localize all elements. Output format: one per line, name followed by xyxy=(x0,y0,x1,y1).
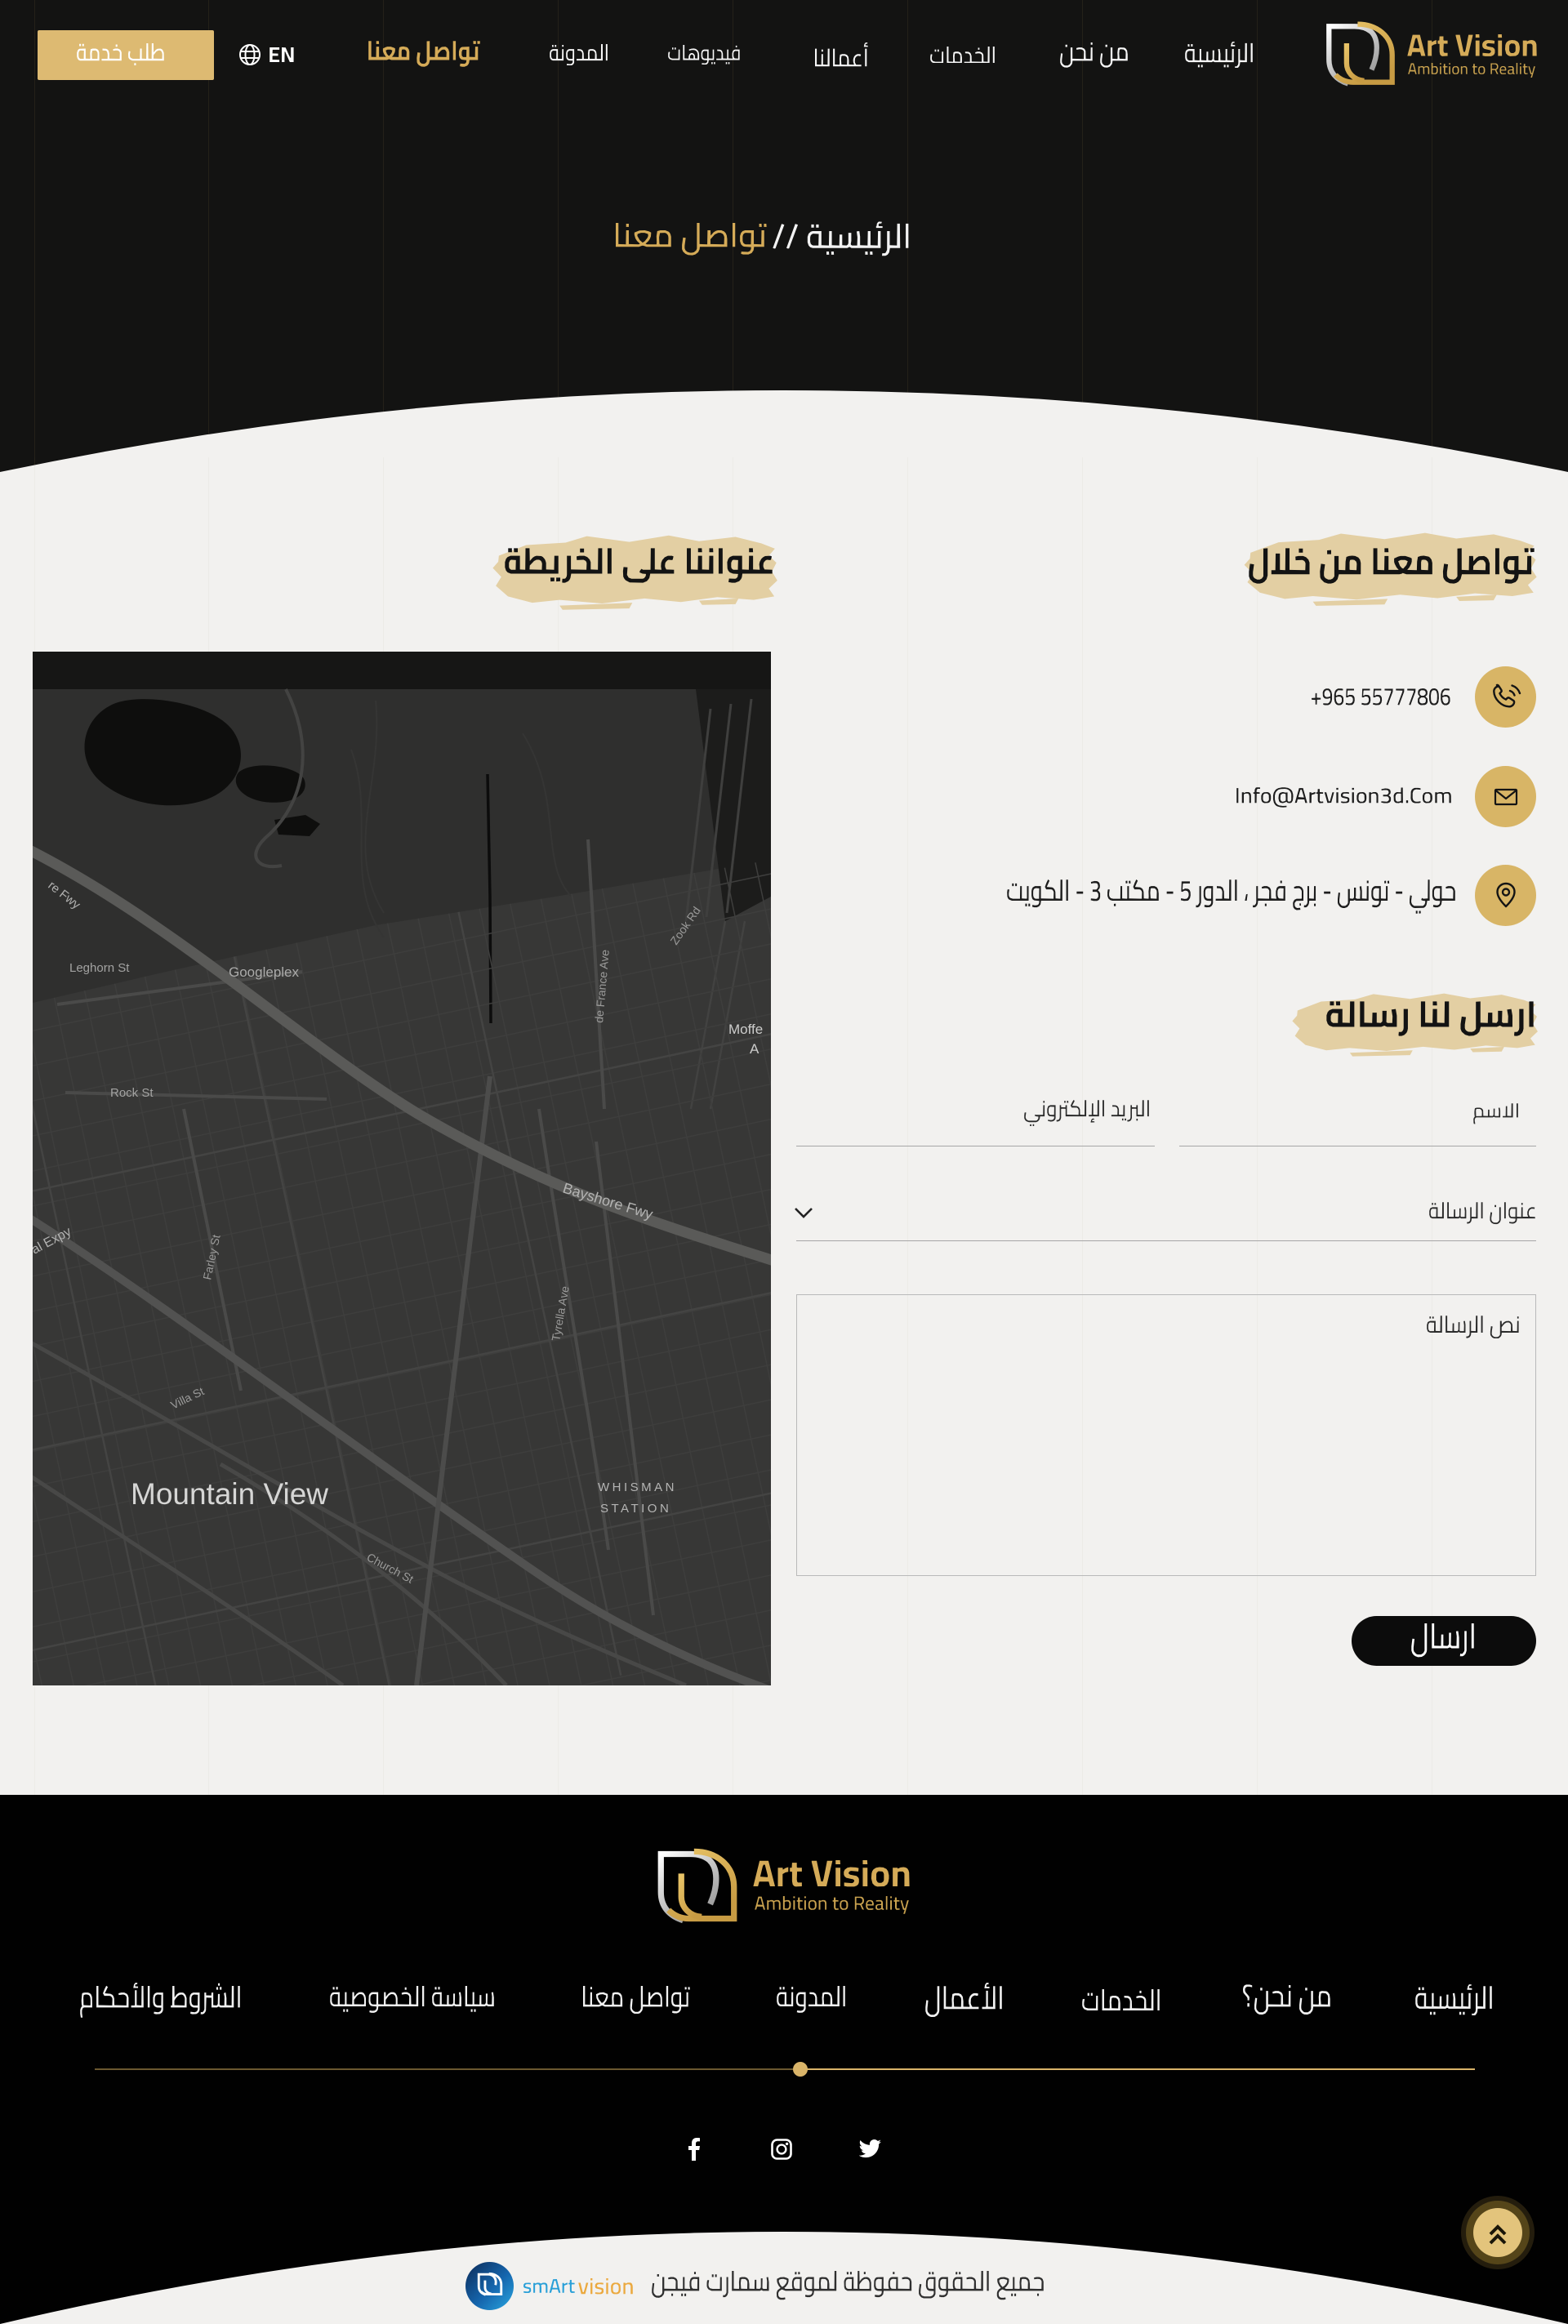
svg-text:Rock St: Rock St xyxy=(110,1086,154,1100)
svg-text:Leghorn St: Leghorn St xyxy=(69,961,130,975)
svg-text:STATION: STATION xyxy=(600,1502,671,1516)
svg-text:WHISMAN: WHISMAN xyxy=(598,1480,677,1494)
svg-text:Mountain View: Mountain View xyxy=(131,1477,328,1511)
svg-text:A: A xyxy=(750,1041,759,1057)
svg-text:Googleplex: Googleplex xyxy=(229,964,300,980)
svg-text:Moffe: Moffe xyxy=(728,1022,763,1037)
